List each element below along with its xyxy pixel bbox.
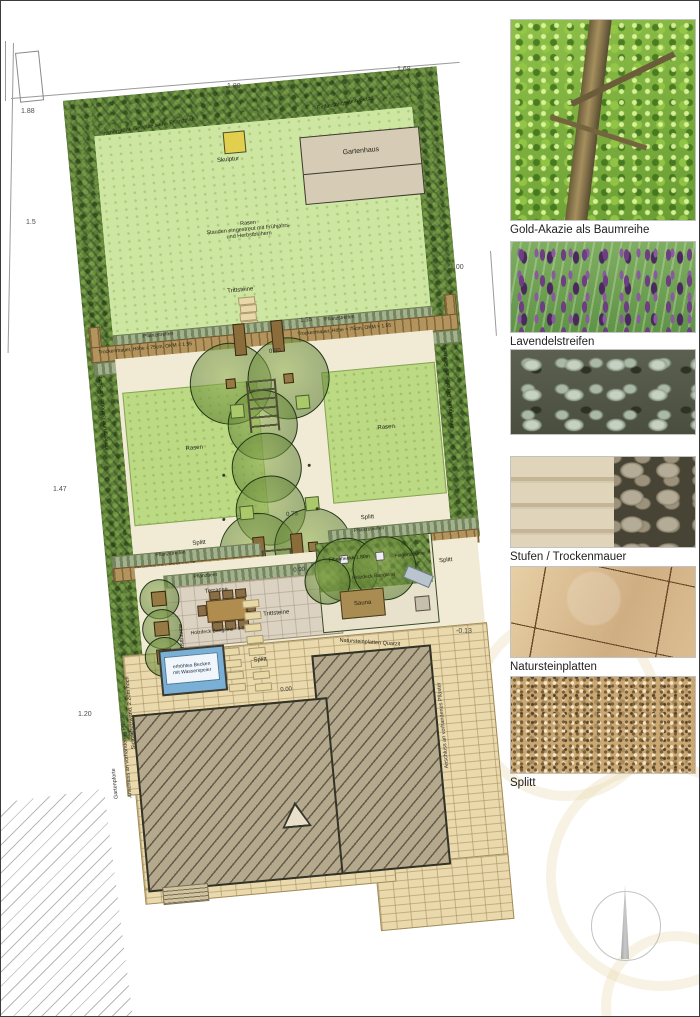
house-footprint	[132, 697, 344, 892]
spot-elevation: 0.00	[280, 686, 292, 693]
site-plan: Gartenhaus Skulptur Immergrüne Gehölze s…	[63, 66, 517, 967]
spot-elevation: 1.68	[397, 66, 411, 73]
photo-santolina	[510, 349, 696, 435]
legend-caption: Splitt	[510, 777, 696, 789]
legend-caption: Lavendelstreifen	[510, 336, 696, 348]
stepping-stone	[244, 623, 262, 633]
legend-item: Santolinalabyrinth	[510, 349, 696, 435]
tree-planter	[151, 591, 167, 607]
legend-item: Lavendelstreifen	[510, 241, 696, 348]
stepping-stone	[246, 635, 264, 645]
legend-item: Natursteinplatten	[510, 566, 696, 673]
legend-caption: Gold-Akazie als Baumreihe	[510, 224, 696, 236]
water-basin-label-box: erhöhtes Becken mit Wasserspeier	[164, 652, 220, 685]
stepping-stone	[229, 683, 247, 693]
gartenhaus-building: Gartenhaus	[299, 126, 425, 205]
entrance-steps	[162, 883, 209, 905]
stepping-stone	[244, 611, 262, 621]
legend-item: Splitt	[510, 676, 696, 789]
gravel-label: Splitt	[361, 514, 375, 522]
chair	[209, 591, 221, 601]
stepping-stone	[248, 647, 266, 657]
spot-elevation: 0.00	[293, 567, 305, 574]
spot-elevation: 0.75	[286, 511, 298, 518]
spot-elevation: 1.47	[53, 486, 67, 493]
photo-splitt	[510, 676, 696, 774]
legend-item: Stufen / Trockenmauer	[510, 456, 696, 563]
chair	[222, 589, 234, 599]
spot-elevation: 1.80	[227, 83, 241, 90]
stepping-stone	[224, 659, 242, 669]
spot-elevation: 1.88	[21, 108, 35, 115]
tree-planter	[153, 620, 169, 636]
stepping-stone	[226, 671, 244, 681]
planter-square	[283, 373, 294, 384]
gravel-label: Splitt	[253, 657, 267, 665]
stepping-stone	[253, 670, 271, 680]
spot-elevation: -0.13	[456, 628, 472, 635]
boundary-line	[490, 251, 497, 336]
chair	[235, 588, 247, 598]
spot-elevation: 1.20	[78, 711, 92, 718]
legend-caption: Natursteinplatten	[510, 661, 696, 673]
spot-elevation: 0.80	[269, 348, 281, 355]
sculpture-marker	[223, 130, 247, 154]
drywall-stones	[614, 457, 695, 547]
existing-pavement-hatch	[1, 789, 133, 1017]
gravel-label: Splitt	[192, 540, 206, 548]
photo-stufen-trockenmauer	[510, 456, 696, 548]
spot-elevation: 1.55	[300, 317, 312, 324]
gravel-label: Splitt	[439, 557, 453, 565]
legend-item: Gold-Akazie als Baumreihe	[510, 19, 696, 236]
chair	[197, 605, 207, 617]
photo-natursteinplatten	[510, 566, 696, 658]
legend-caption: Stufen / Trockenmauer	[510, 551, 696, 563]
side-table	[414, 595, 430, 611]
stone-steps	[511, 457, 614, 547]
sauna-label: Sauna	[354, 600, 372, 608]
light-marker	[375, 551, 385, 561]
boundary-line	[5, 41, 6, 101]
plan-sheet: Gartenhaus Skulptur Immergrüne Gehölze s…	[0, 0, 700, 1017]
spot-elevation: 1.5	[26, 219, 36, 226]
photo-gold-akazie	[510, 19, 696, 221]
sauna-building: Sauna	[339, 587, 385, 619]
mid-lawn-right	[321, 362, 447, 504]
corner-planting-square	[230, 404, 245, 419]
corner-planting-square	[295, 395, 310, 410]
stepping-stone	[255, 682, 273, 692]
planter-square	[225, 378, 236, 389]
stepping-stone	[242, 599, 260, 609]
corner-planting-square	[239, 505, 254, 520]
garden-gate-note: Gartenpforte	[111, 768, 120, 799]
spot-elevation: 1.00	[450, 264, 464, 271]
boundary-line	[8, 43, 14, 353]
steps-upper	[246, 379, 281, 434]
photo-lavendel	[510, 241, 696, 333]
neighbor-building-outline	[15, 50, 44, 102]
